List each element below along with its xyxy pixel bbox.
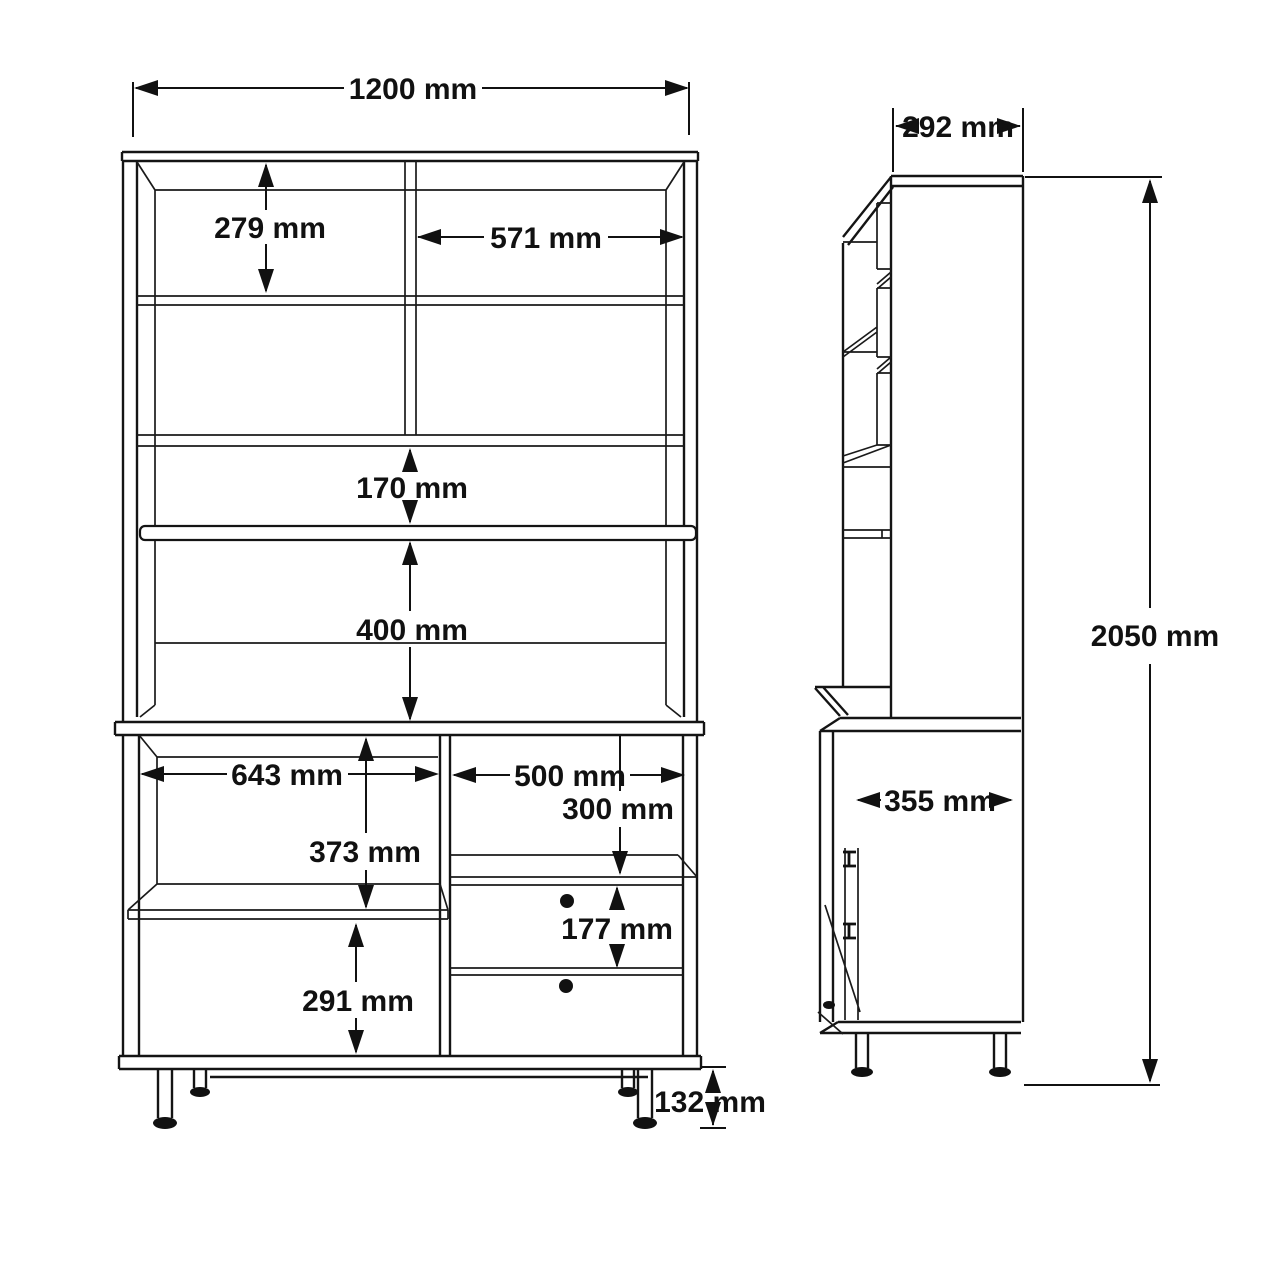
dim-open-shelf-height: 400 mm: [356, 541, 468, 721]
dim-label-lower-right-width: 500 mm: [514, 760, 626, 793]
dim-leg-height: 132 mm: [654, 1067, 766, 1128]
dim-label-upper-left-height: 279 mm: [214, 212, 326, 245]
technical-drawing-page: 1200 mm 279 mm 571 mm 170 mm 400 mm: [0, 0, 1280, 1280]
cabinet-dimension-drawing: 1200 mm 279 mm 571 mm 170 mm 400 mm: [0, 0, 1280, 1280]
dim-label-drawer-recess-height: 300 mm: [562, 793, 674, 826]
foot: [989, 1067, 1011, 1077]
side-view: 292 mm 2050 mm 355 mm: [815, 108, 1219, 1085]
dim-label-drawer-height: 177 mm: [561, 913, 673, 946]
dim-upper-right-width: 571 mm: [417, 222, 684, 255]
dim-label-open-shelf-height: 400 mm: [356, 614, 468, 647]
dim-label-lower-left-upper-height: 373 mm: [309, 836, 421, 869]
front-feet: [153, 1087, 657, 1129]
dim-label-lower-left-bottom-height: 291 mm: [302, 985, 414, 1018]
dim-lower-right-width: 500 mm: [452, 760, 685, 793]
dim-label-overall-height: 2050 mm: [1091, 620, 1219, 653]
arrowhead: [612, 851, 628, 875]
dim-label-overall-width: 1200 mm: [349, 73, 477, 106]
dim-label-upper-right-width: 571 mm: [490, 222, 602, 255]
drawer-knob-top: [560, 894, 574, 908]
foot: [153, 1117, 177, 1129]
dim-lower-depth: 355 mm: [856, 785, 1013, 818]
dim-label-lower-depth: 355 mm: [884, 785, 996, 818]
foot: [618, 1087, 638, 1097]
side-interior-lines: [818, 203, 891, 1034]
dim-upper-depth: 292 mm: [893, 108, 1023, 172]
drawer-knob-bottom: [559, 979, 573, 993]
dim-lower-left-bottom-height: 291 mm: [302, 923, 414, 1054]
foot: [190, 1087, 210, 1097]
dim-middle-shelf-gap: 170 mm: [356, 448, 468, 524]
dim-overall-width: 1200 mm: [133, 73, 689, 137]
front-view: 1200 mm 279 mm 571 mm 170 mm 400 mm: [115, 73, 766, 1129]
side-cabinet-outline: [815, 176, 1023, 1068]
dim-drawer-height: 177 mm: [561, 886, 673, 968]
dim-label-middle-shelf-gap: 170 mm: [356, 472, 468, 505]
front-protruding-shelf: [140, 526, 696, 540]
foot: [851, 1067, 873, 1077]
dim-upper-left-height: 279 mm: [214, 163, 326, 293]
dim-label-lower-left-width: 643 mm: [231, 759, 343, 792]
dim-overall-height: 2050 mm: [1024, 177, 1219, 1085]
dim-lower-left-width: 643 mm: [140, 759, 439, 792]
dim-label-upper-depth: 292 mm: [902, 111, 1014, 144]
side-feet: [823, 1001, 1011, 1077]
dim-label-leg-height: 132 mm: [654, 1086, 766, 1119]
door-foot: [823, 1001, 835, 1009]
